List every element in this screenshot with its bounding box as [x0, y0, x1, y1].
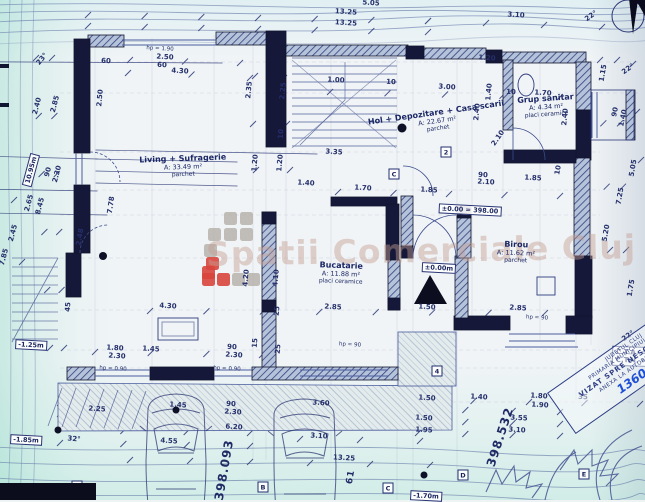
floor-plan-drawing — [0, 0, 645, 500]
terrace-hatch — [58, 332, 456, 431]
door-swings — [80, 128, 545, 258]
site-contours-left — [8, 0, 35, 500]
vegetation — [486, 430, 642, 500]
entrance-triangle — [414, 275, 447, 304]
staircase — [292, 58, 397, 148]
scan-black-bar — [0, 483, 96, 500]
scan-edge-mark — [0, 64, 9, 68]
scan-edge-mark — [0, 103, 9, 107]
walls — [66, 31, 635, 380]
